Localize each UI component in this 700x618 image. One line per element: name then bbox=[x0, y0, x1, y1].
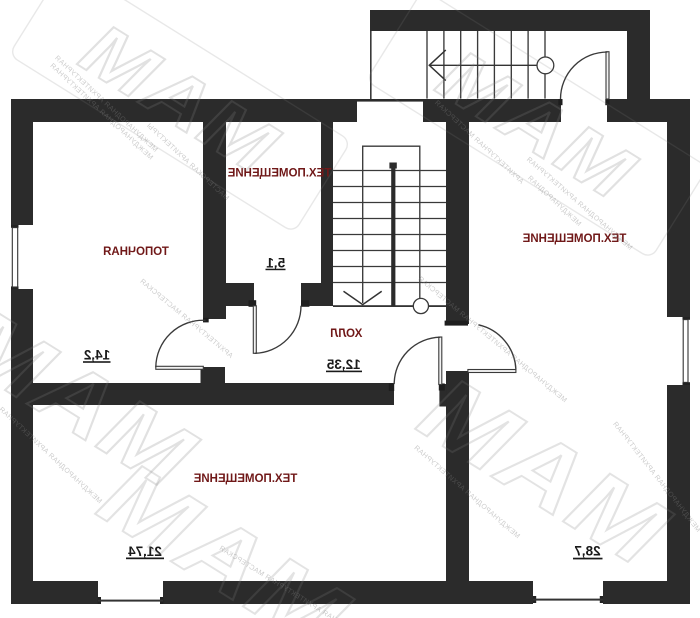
svg-text:5,1: 5,1 bbox=[266, 255, 285, 270]
svg-text:12,35: 12,35 bbox=[326, 357, 360, 372]
svg-text:ТОПОЧНАЯ: ТОПОЧНАЯ bbox=[103, 246, 169, 258]
svg-text:ХОЛЛ: ХОЛЛ bbox=[330, 328, 362, 340]
